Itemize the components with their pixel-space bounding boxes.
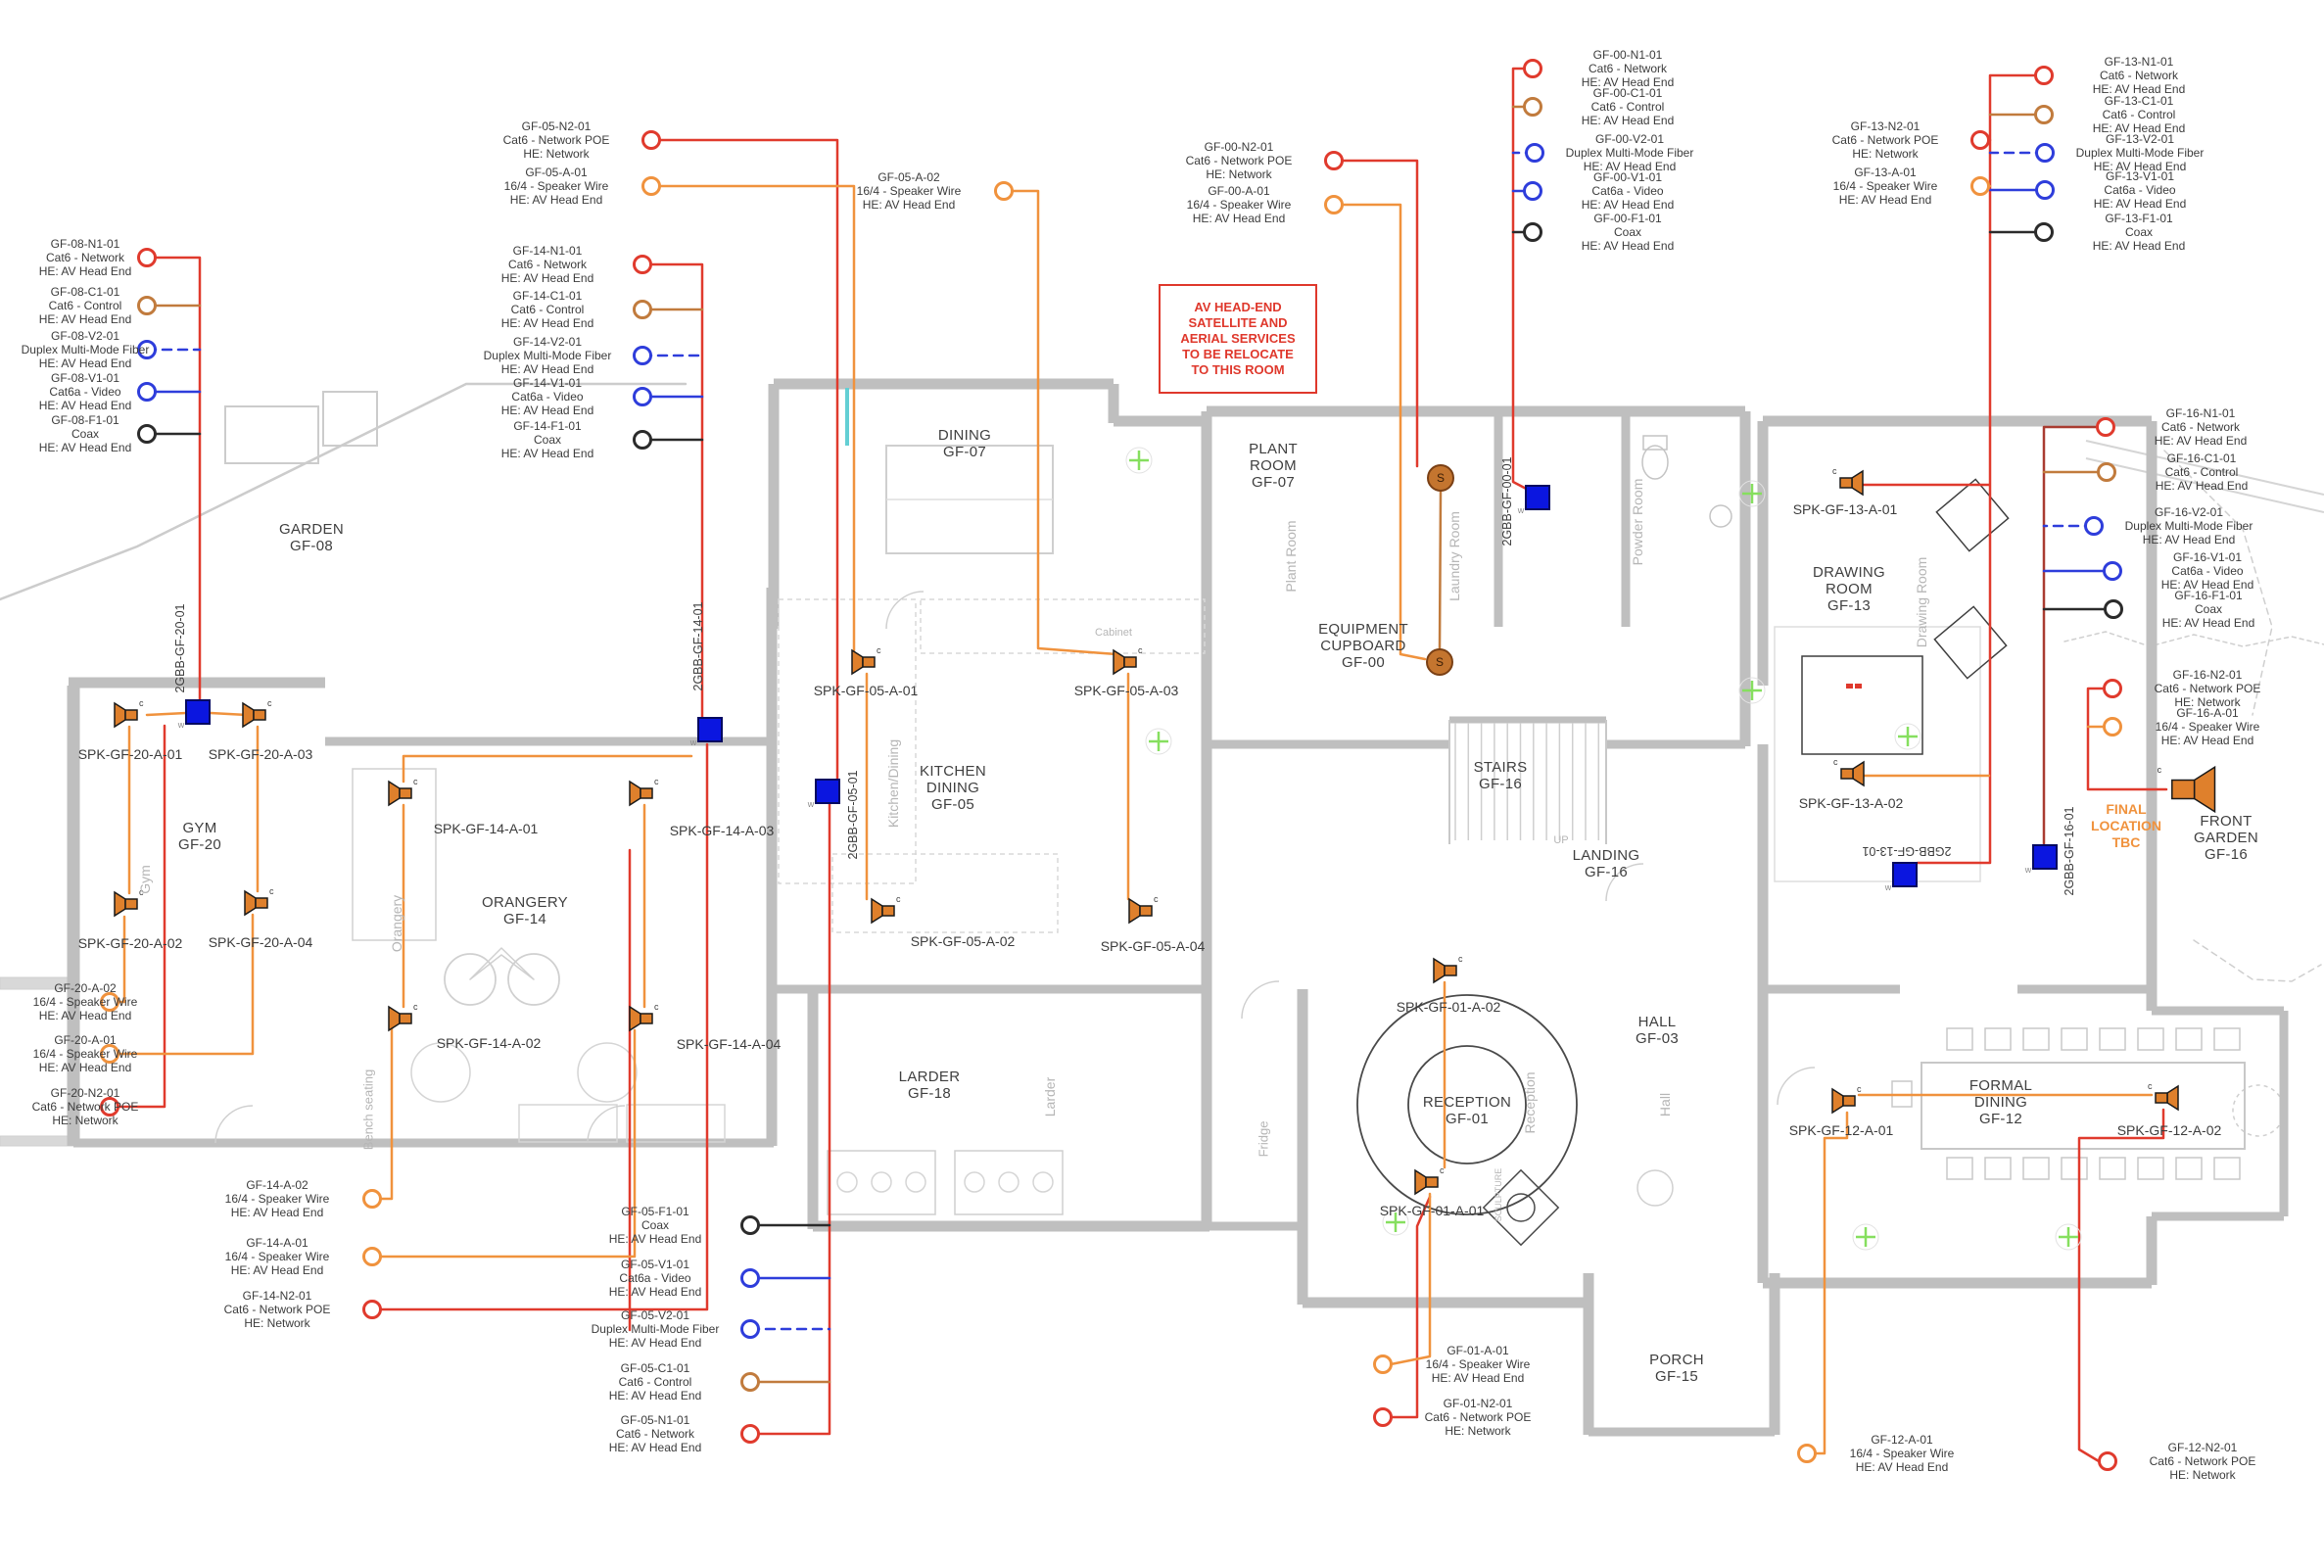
cable-callout-GF-00-C1-01: GF-00-C1-01Cat6 - ControlHE: AV Head End: [1544, 86, 1711, 127]
callout-dest: HE: AV Head End: [1544, 198, 1711, 212]
callout-dest: HE: AV Head End: [572, 1285, 738, 1299]
cable-callout-GF-08-V2-01: GF-08-V2-01Duplex Multi-Mode FiberHE: AV…: [2, 329, 168, 370]
callout-cable: Coax: [2, 427, 168, 441]
callout-cable: Duplex Multi-Mode Fiber: [1546, 146, 1713, 160]
callout-id: GF-14-V1-01: [464, 376, 631, 390]
room-label-plant-room-gf-07: PLANTROOMGF-07: [1249, 441, 1298, 491]
cable-callout-GF-01-N2-01: GF-01-N2-01Cat6 - Network POEHE: Network: [1395, 1397, 1561, 1438]
cable-callout-GF-14-N1-01: GF-14-N1-01Cat6 - NetworkHE: AV Head End: [464, 244, 631, 285]
callout-id: GF-00-F1-01: [1544, 212, 1711, 225]
cable-callout-GF-16-A-01: GF-16-A-0116/4 - Speaker WireHE: AV Head…: [2124, 706, 2291, 747]
speaker-label-SPK-GF-12-A-02: SPK-GF-12-A-02: [2117, 1122, 2222, 1138]
area-annotation-drawing-room: Drawing Room: [1914, 557, 1929, 648]
room-label-line: DINING: [920, 780, 986, 796]
room-label-line: GF-16: [1573, 864, 1640, 880]
cable-callout-GF-13-F1-01: GF-13-F1-01CoaxHE: AV Head End: [2056, 212, 2222, 253]
callout-cable: Cat6 - Network: [572, 1427, 738, 1441]
cable-callout-GF-08-C1-01: GF-08-C1-01Cat6 - ControlHE: AV Head End: [2, 285, 168, 326]
cable-callout-GF-08-F1-01: GF-08-F1-01CoaxHE: AV Head End: [2, 413, 168, 454]
callout-dest: HE: AV Head End: [1544, 114, 1711, 127]
speaker-label-SPK-GF-14-A-03: SPK-GF-14-A-03: [670, 823, 775, 838]
callout-dest: HE: AV Head End: [464, 316, 631, 330]
callout-id: GF-13-C1-01: [2056, 94, 2222, 108]
callout-cable: Cat6 - Network POE: [1395, 1410, 1561, 1424]
callout-cable: Duplex Multi-Mode Fiber: [2, 343, 168, 356]
room-label-line: GF-14: [482, 911, 568, 927]
callout-cable: Cat6 - Control: [2056, 108, 2222, 121]
area-annotation-larder: Larder: [1042, 1077, 1058, 1117]
room-label-line: ORANGERY: [482, 894, 568, 911]
speaker-label-SPK-GF-20-A-04: SPK-GF-20-A-04: [209, 934, 313, 950]
room-label-line: GYM: [178, 820, 221, 836]
note-line: FINAL: [2091, 801, 2161, 818]
callout-id: GF-14-V2-01: [464, 335, 631, 349]
callout-id: GF-08-C1-01: [2, 285, 168, 299]
room-label-line: GF-13: [1813, 597, 1885, 614]
callout-dest: HE: Network: [1395, 1424, 1561, 1438]
callout-cable: Cat6 - Control: [464, 303, 631, 316]
room-label-line: ROOM: [1813, 581, 1885, 597]
note-final-location-tbc: FINALLOCATIONTBC: [2091, 801, 2161, 851]
callout-dest: HE: AV Head End: [473, 193, 640, 207]
callout-id: GF-00-V1-01: [1544, 170, 1711, 184]
room-label-line: LANDING: [1573, 847, 1640, 864]
note-line: AERIAL SERVICES: [1161, 331, 1315, 347]
callout-cable: 16/4 - Speaker Wire: [1395, 1357, 1561, 1371]
callout-cable: Cat6 - Network POE: [2, 1100, 168, 1114]
speaker-label-SPK-GF-01-A-01: SPK-GF-01-A-01: [1380, 1203, 1485, 1218]
callout-id: GF-01-N2-01: [1395, 1397, 1561, 1410]
callout-dest: HE: AV Head End: [1802, 193, 1968, 207]
callout-id: GF-16-V1-01: [2124, 550, 2291, 564]
room-label-line: STAIRS: [1474, 759, 1528, 776]
callout-cable: Duplex Multi-Mode Fiber: [464, 349, 631, 362]
room-label-line: GF-08: [279, 538, 344, 554]
callout-id: GF-00-N1-01: [1544, 48, 1711, 62]
callout-dest: HE: AV Head End: [194, 1263, 360, 1277]
speaker-label-SPK-GF-13-A-01: SPK-GF-13-A-01: [1793, 501, 1898, 517]
cable-callout-GF-05-N2-01: GF-05-N2-01Cat6 - Network POEHE: Network: [473, 119, 640, 161]
callout-cable: Cat6 - Network POE: [1156, 154, 1322, 167]
speaker-label-SPK-GF-05-A-01: SPK-GF-05-A-01: [814, 683, 919, 698]
room-label-line: GF-16: [1474, 776, 1528, 792]
callout-dest: HE: AV Head End: [2124, 734, 2291, 747]
room-label-porch-gf-15: PORCHGF-15: [1649, 1352, 1704, 1385]
speaker-label-SPK-GF-05-A-02: SPK-GF-05-A-02: [911, 933, 1016, 949]
callout-cable: 16/4 - Speaker Wire: [1802, 179, 1968, 193]
callout-id: GF-16-N2-01: [2124, 668, 2291, 682]
room-label-line: DINING: [938, 427, 991, 444]
callout-cable: Duplex Multi-Mode Fiber: [572, 1322, 738, 1336]
cable-callout-GF-00-F1-01: GF-00-F1-01CoaxHE: AV Head End: [1544, 212, 1711, 253]
callout-id: GF-12-N2-01: [2119, 1441, 2286, 1454]
room-label-larder-gf-18: LARDERGF-18: [899, 1069, 961, 1102]
area-annotation-laundry-room: Laundry Room: [1447, 511, 1462, 601]
callout-dest: HE: AV Head End: [2, 441, 168, 454]
callout-dest: HE: AV Head End: [2056, 239, 2222, 253]
room-label-line: GF-03: [1636, 1030, 1679, 1047]
callout-cable: Cat6 - Network: [2056, 69, 2222, 82]
callout-cable: 16/4 - Speaker Wire: [1156, 198, 1322, 212]
callout-dest: HE: AV Head End: [2125, 616, 2292, 630]
speaker-label-SPK-GF-20-A-02: SPK-GF-20-A-02: [78, 935, 183, 951]
speaker-label-SPK-GF-12-A-01: SPK-GF-12-A-01: [1789, 1122, 1894, 1138]
callout-cable: Cat6 - Control: [2, 299, 168, 312]
callout-cable: Cat6a - Video: [464, 390, 631, 404]
callout-id: GF-13-N2-01: [1802, 119, 1968, 133]
room-label-line: DRAWING: [1813, 564, 1885, 581]
distribution-box-label-2GBB-GF-13-01: 2GBB-GF-13-01: [1862, 844, 1951, 858]
area-annotation-powder-room: Powder Room: [1630, 479, 1645, 566]
callout-cable: Cat6 - Network: [2, 251, 168, 264]
room-label-reception-gf-01: RECEPTIONGF-01: [1423, 1094, 1511, 1127]
callout-cable: 16/4 - Speaker Wire: [826, 184, 992, 198]
area-annotation-up: UP: [1553, 834, 1568, 846]
callout-id: GF-14-F1-01: [464, 419, 631, 433]
callout-id: GF-13-V2-01: [2057, 132, 2223, 146]
callout-dest: HE: Network: [1156, 167, 1322, 181]
callout-dest: HE: Network: [2119, 1468, 2286, 1482]
cable-callout-GF-14-A-01: GF-14-A-0116/4 - Speaker WireHE: AV Head…: [194, 1236, 360, 1277]
callout-id: GF-05-N2-01: [473, 119, 640, 133]
callout-cable: Coax: [464, 433, 631, 447]
speaker-label-SPK-GF-01-A-02: SPK-GF-01-A-02: [1397, 999, 1501, 1015]
cable-callout-GF-05-N1-01: GF-05-N1-01Cat6 - NetworkHE: AV Head End: [572, 1413, 738, 1454]
callout-id: GF-08-V2-01: [2, 329, 168, 343]
room-label-orangery-gf-14: ORANGERYGF-14: [482, 894, 568, 927]
room-label-line: GF-12: [1969, 1111, 2032, 1127]
area-annotation-reception: Reception: [1522, 1071, 1538, 1133]
callout-cable: Duplex Multi-Mode Fiber: [2106, 519, 2272, 533]
cable-callout-GF-14-F1-01: GF-14-F1-01CoaxHE: AV Head End: [464, 419, 631, 460]
cable-callout-GF-13-V2-01: GF-13-V2-01Duplex Multi-Mode FiberHE: AV…: [2057, 132, 2223, 173]
floor-plan-canvas: cccccccccccccccccccwwwwwwSS GF-08-N1-01C…: [0, 0, 2324, 1568]
room-label-line: GF-18: [899, 1085, 961, 1102]
cable-callout-GF-00-V2-01: GF-00-V2-01Duplex Multi-Mode FiberHE: AV…: [1546, 132, 1713, 173]
area-annotation-kitchen-dining: Kitchen/Dining: [885, 739, 901, 828]
speaker-label-SPK-GF-14-A-01: SPK-GF-14-A-01: [434, 821, 539, 836]
callout-cable: 16/4 - Speaker Wire: [2, 995, 168, 1009]
cable-callout-GF-14-A-02: GF-14-A-0216/4 - Speaker WireHE: AV Head…: [194, 1178, 360, 1219]
cable-callout-GF-20-A-01: GF-20-A-0116/4 - Speaker WireHE: AV Head…: [2, 1033, 168, 1074]
callout-cable: Cat6 - Network: [1544, 62, 1711, 75]
callout-id: GF-20-A-01: [2, 1033, 168, 1047]
cable-callout-GF-00-V1-01: GF-00-V1-01Cat6a - VideoHE: AV Head End: [1544, 170, 1711, 212]
speaker-label-SPK-GF-20-A-01: SPK-GF-20-A-01: [78, 746, 183, 762]
callout-cable: Cat6 - Network POE: [2124, 682, 2291, 695]
callout-id: GF-14-C1-01: [464, 289, 631, 303]
callout-id: GF-16-F1-01: [2125, 589, 2292, 602]
cable-callout-GF-00-N2-01: GF-00-N2-01Cat6 - Network POEHE: Network: [1156, 140, 1322, 181]
cable-callout-GF-16-V2-01: GF-16-V2-01Duplex Multi-Mode FiberHE: AV…: [2106, 505, 2272, 546]
room-label-line: LARDER: [899, 1069, 961, 1085]
room-label-line: GF-05: [920, 796, 986, 813]
callout-cable: Coax: [1544, 225, 1711, 239]
callout-cable: 16/4 - Speaker Wire: [2, 1047, 168, 1061]
callout-id: GF-20-N2-01: [2, 1086, 168, 1100]
room-label-line: KITCHEN: [920, 763, 986, 780]
callout-id: GF-00-C1-01: [1544, 86, 1711, 100]
callout-id: GF-01-A-01: [1395, 1344, 1561, 1357]
callout-id: GF-16-A-01: [2124, 706, 2291, 720]
room-label-line: GF-01: [1423, 1111, 1511, 1127]
callout-dest: HE: AV Head End: [2, 1061, 168, 1074]
distribution-box-label-2GBB-GF-16-01: 2GBB-GF-16-01: [2063, 806, 2076, 895]
room-label-front-garden-gf-16: FRONTGARDENGF-16: [2194, 813, 2258, 863]
callout-id: GF-13-F1-01: [2056, 212, 2222, 225]
room-label-line: PORCH: [1649, 1352, 1704, 1368]
speaker-label-SPK-GF-05-A-03: SPK-GF-05-A-03: [1074, 683, 1179, 698]
callout-id: GF-08-N1-01: [2, 237, 168, 251]
callout-id: GF-08-F1-01: [2, 413, 168, 427]
area-annotation-orangery: Orangery: [389, 895, 404, 952]
room-label-line: HALL: [1636, 1014, 1679, 1030]
callout-id: GF-14-A-01: [194, 1236, 360, 1250]
room-label-line: ROOM: [1249, 457, 1298, 474]
callout-dest: HE: AV Head End: [572, 1389, 738, 1402]
note-line: TO BE RELOCATE: [1161, 347, 1315, 362]
callout-id: GF-05-V2-01: [572, 1308, 738, 1322]
callout-dest: HE: AV Head End: [2, 264, 168, 278]
room-label-line: FRONT: [2194, 813, 2258, 830]
callout-dest: HE: AV Head End: [2, 399, 168, 412]
room-label-landing-gf-16: LANDINGGF-16: [1573, 847, 1640, 880]
area-annotation-bench-seating: Bench seating: [361, 1069, 376, 1150]
cable-callout-GF-13-V1-01: GF-13-V1-01Cat6a - VideoHE: AV Head End: [2057, 169, 2223, 211]
callout-id: GF-05-A-02: [826, 170, 992, 184]
speaker-label-SPK-GF-20-A-03: SPK-GF-20-A-03: [209, 746, 313, 762]
callout-dest: HE: AV Head End: [2, 356, 168, 370]
cable-callout-GF-20-N2-01: GF-20-N2-01Cat6 - Network POEHE: Network: [2, 1086, 168, 1127]
callout-id: GF-05-C1-01: [572, 1361, 738, 1375]
room-label-line: DINING: [1969, 1094, 2032, 1111]
callout-cable: Cat6a - Video: [2057, 183, 2223, 197]
room-label-line: GF-07: [938, 444, 991, 460]
callout-dest: HE: AV Head End: [572, 1336, 738, 1350]
callout-dest: HE: Network: [194, 1316, 360, 1330]
callout-cable: Cat6 - Network: [2117, 420, 2284, 434]
cable-callout-GF-14-V1-01: GF-14-V1-01Cat6a - VideoHE: AV Head End: [464, 376, 631, 417]
callout-cable: Coax: [572, 1218, 738, 1232]
callout-cable: 16/4 - Speaker Wire: [2124, 720, 2291, 734]
callout-dest: HE: AV Head End: [572, 1441, 738, 1454]
callout-id: GF-00-N2-01: [1156, 140, 1322, 154]
room-label-line: GF-15: [1649, 1368, 1704, 1385]
callout-cable: Coax: [2125, 602, 2292, 616]
cable-callout-GF-05-V1-01: GF-05-V1-01Cat6a - VideoHE: AV Head End: [572, 1258, 738, 1299]
callout-dest: HE: Network: [473, 147, 640, 161]
cable-callout-GF-16-V1-01: GF-16-V1-01Cat6a - VideoHE: AV Head End: [2124, 550, 2291, 592]
callout-dest: HE: AV Head End: [1819, 1460, 1985, 1474]
callout-dest: HE: Network: [2, 1114, 168, 1127]
callout-cable: Cat6 - Network: [464, 258, 631, 271]
callout-id: GF-00-V2-01: [1546, 132, 1713, 146]
room-label-line: GARDEN: [2194, 830, 2258, 846]
note-line: TO THIS ROOM: [1161, 362, 1315, 378]
callout-cable: Cat6 - Control: [572, 1375, 738, 1389]
note-line: LOCATION: [2091, 818, 2161, 834]
callout-cable: Cat6a - Video: [572, 1271, 738, 1285]
cable-callout-GF-08-V1-01: GF-08-V1-01Cat6a - VideoHE: AV Head End: [2, 371, 168, 412]
callout-cable: Cat6 - Control: [1544, 100, 1711, 114]
cable-callout-GF-05-F1-01: GF-05-F1-01CoaxHE: AV Head End: [572, 1205, 738, 1246]
callout-id: GF-13-N1-01: [2056, 55, 2222, 69]
callout-cable: 16/4 - Speaker Wire: [473, 179, 640, 193]
callout-id: GF-00-A-01: [1156, 184, 1322, 198]
callout-cable: Cat6a - Video: [1544, 184, 1711, 198]
cable-callout-GF-00-A-01: GF-00-A-0116/4 - Speaker WireHE: AV Head…: [1156, 184, 1322, 225]
note-line: SATELLITE AND: [1161, 315, 1315, 331]
callout-dest: HE: AV Head End: [2057, 197, 2223, 211]
callout-dest: HE: AV Head End: [464, 404, 631, 417]
cable-callout-GF-16-F1-01: GF-16-F1-01CoaxHE: AV Head End: [2125, 589, 2292, 630]
room-label-line: FORMAL: [1969, 1077, 2032, 1094]
cable-callout-GF-16-C1-01: GF-16-C1-01Cat6 - ControlHE: AV Head End: [2118, 451, 2285, 493]
room-label-hall-gf-03: HALLGF-03: [1636, 1014, 1679, 1047]
cable-callout-GF-14-V2-01: GF-14-V2-01Duplex Multi-Mode FiberHE: AV…: [464, 335, 631, 376]
callout-cable: Cat6 - Control: [2118, 465, 2285, 479]
callout-dest: HE: AV Head End: [464, 447, 631, 460]
callout-cable: Cat6 - Network POE: [2119, 1454, 2286, 1468]
cable-callout-GF-14-N2-01: GF-14-N2-01Cat6 - Network POEHE: Network: [194, 1289, 360, 1330]
callout-id: GF-05-A-01: [473, 166, 640, 179]
room-label-line: GARDEN: [279, 521, 344, 538]
speaker-label-SPK-GF-05-A-04: SPK-GF-05-A-04: [1101, 938, 1206, 954]
distribution-box-label-2GBB-GF-14-01: 2GBB-GF-14-01: [691, 601, 705, 690]
callout-cable: Cat6a - Video: [2, 385, 168, 399]
note-line: TBC: [2091, 834, 2161, 851]
room-label-kitchen-dining-gf-05: KITCHENDININGGF-05: [920, 763, 986, 813]
area-annotation-cabinet: Cabinet: [1095, 627, 1132, 639]
cable-callout-GF-16-N1-01: GF-16-N1-01Cat6 - NetworkHE: AV Head End: [2117, 406, 2284, 448]
area-annotation-hall: Hall: [1657, 1093, 1673, 1117]
callout-id: GF-14-N1-01: [464, 244, 631, 258]
speaker-label-SPK-GF-14-A-04: SPK-GF-14-A-04: [677, 1036, 782, 1052]
callout-dest: HE: AV Head End: [464, 362, 631, 376]
callout-id: GF-16-N1-01: [2117, 406, 2284, 420]
room-label-stairs-gf-16: STAIRSGF-16: [1474, 759, 1528, 792]
room-label-line: CUPBOARD: [1318, 638, 1408, 654]
room-label-line: EQUIPMENT: [1318, 621, 1408, 638]
cable-callout-GF-13-A-01: GF-13-A-0116/4 - Speaker WireHE: AV Head…: [1802, 166, 1968, 207]
speaker-label-SPK-GF-13-A-02: SPK-GF-13-A-02: [1799, 795, 1904, 811]
note-relocate-services: AV HEAD-ENDSATELLITE ANDAERIAL SERVICEST…: [1159, 284, 1317, 394]
note-line: AV HEAD-END: [1161, 300, 1315, 315]
cable-callout-GF-05-A-02: GF-05-A-0216/4 - Speaker WireHE: AV Head…: [826, 170, 992, 212]
room-label-line: GF-20: [178, 836, 221, 853]
callout-id: GF-14-A-02: [194, 1178, 360, 1192]
room-label-drawing-room-gf-13: DRAWINGROOMGF-13: [1813, 564, 1885, 614]
callout-dest: HE: AV Head End: [2117, 434, 2284, 448]
area-annotation-gym: Gym: [137, 865, 153, 894]
callout-id: GF-12-A-01: [1819, 1433, 1985, 1447]
area-annotation-fridge: Fridge: [1257, 1121, 1271, 1158]
callout-cable: Cat6 - Network POE: [194, 1303, 360, 1316]
room-label-line: GF-00: [1318, 654, 1408, 671]
callout-cable: Cat6a - Video: [2124, 564, 2291, 578]
callout-dest: HE: AV Head End: [2106, 533, 2272, 546]
cable-callout-GF-13-N2-01: GF-13-N2-01Cat6 - Network POEHE: Network: [1802, 119, 1968, 161]
callout-id: GF-13-V1-01: [2057, 169, 2223, 183]
cable-callout-GF-05-V2-01: GF-05-V2-01Duplex Multi-Mode FiberHE: AV…: [572, 1308, 738, 1350]
room-label-garden-gf-08: GARDENGF-08: [279, 521, 344, 554]
callout-dest: HE: AV Head End: [2, 312, 168, 326]
callout-id: GF-13-A-01: [1802, 166, 1968, 179]
callout-id: GF-16-V2-01: [2106, 505, 2272, 519]
cable-callout-GF-05-C1-01: GF-05-C1-01Cat6 - ControlHE: AV Head End: [572, 1361, 738, 1402]
room-label-gym-gf-20: GYMGF-20: [178, 820, 221, 853]
room-label-equipment-cupboard-gf-00: EQUIPMENTCUPBOARDGF-00: [1318, 621, 1408, 671]
callout-cable: 16/4 - Speaker Wire: [1819, 1447, 1985, 1460]
callout-id: GF-16-C1-01: [2118, 451, 2285, 465]
callout-cable: 16/4 - Speaker Wire: [194, 1192, 360, 1206]
callout-cable: Cat6 - Network POE: [1802, 133, 1968, 147]
callout-dest: HE: AV Head End: [2118, 479, 2285, 493]
room-label-dining-gf-07: DININGGF-07: [938, 427, 991, 460]
speaker-label-SPK-GF-14-A-02: SPK-GF-14-A-02: [437, 1035, 542, 1051]
room-label-line: GF-07: [1249, 474, 1298, 491]
cable-callout-GF-01-A-01: GF-01-A-0116/4 - Speaker WireHE: AV Head…: [1395, 1344, 1561, 1385]
callout-dest: HE: AV Head End: [1395, 1371, 1561, 1385]
callout-id: GF-20-A-02: [2, 981, 168, 995]
callout-dest: HE: AV Head End: [464, 271, 631, 285]
callout-id: GF-14-N2-01: [194, 1289, 360, 1303]
callout-cable: Cat6 - Network POE: [473, 133, 640, 147]
callout-dest: HE: AV Head End: [2, 1009, 168, 1022]
floor-plan-labels: GF-08-N1-01Cat6 - NetworkHE: AV Head End…: [0, 0, 2324, 1568]
area-annotation-sculpture: SCULPTURE: [1494, 1168, 1503, 1222]
cable-callout-GF-20-A-02: GF-20-A-0216/4 - Speaker WireHE: AV Head…: [2, 981, 168, 1022]
room-label-line: RECEPTION: [1423, 1094, 1511, 1111]
distribution-box-label-2GBB-GF-20-01: 2GBB-GF-20-01: [173, 603, 187, 692]
area-annotation-plant-room: Plant Room: [1283, 520, 1299, 592]
cable-callout-GF-12-N2-01: GF-12-N2-01Cat6 - Network POEHE: Network: [2119, 1441, 2286, 1482]
callout-dest: HE: AV Head End: [572, 1232, 738, 1246]
callout-id: GF-08-V1-01: [2, 371, 168, 385]
callout-dest: HE: AV Head End: [1156, 212, 1322, 225]
cable-callout-GF-16-N2-01: GF-16-N2-01Cat6 - Network POEHE: Network: [2124, 668, 2291, 709]
callout-cable: Coax: [2056, 225, 2222, 239]
callout-dest: HE: AV Head End: [194, 1206, 360, 1219]
callout-id: GF-05-F1-01: [572, 1205, 738, 1218]
cable-callout-GF-08-N1-01: GF-08-N1-01Cat6 - NetworkHE: AV Head End: [2, 237, 168, 278]
callout-dest: HE: AV Head End: [1544, 239, 1711, 253]
distribution-box-label-2GBB-GF-05-01: 2GBB-GF-05-01: [846, 770, 860, 859]
cable-callout-GF-00-N1-01: GF-00-N1-01Cat6 - NetworkHE: AV Head End: [1544, 48, 1711, 89]
room-label-line: PLANT: [1249, 441, 1298, 457]
callout-cable: 16/4 - Speaker Wire: [194, 1250, 360, 1263]
callout-cable: Duplex Multi-Mode Fiber: [2057, 146, 2223, 160]
cable-callout-GF-13-C1-01: GF-13-C1-01Cat6 - ControlHE: AV Head End: [2056, 94, 2222, 135]
distribution-box-label-2GBB-GF-00-01: 2GBB-GF-00-01: [1500, 456, 1514, 546]
cable-callout-GF-14-C1-01: GF-14-C1-01Cat6 - ControlHE: AV Head End: [464, 289, 631, 330]
callout-dest: HE: Network: [1802, 147, 1968, 161]
callout-id: GF-05-N1-01: [572, 1413, 738, 1427]
callout-dest: HE: AV Head End: [826, 198, 992, 212]
cable-callout-GF-13-N1-01: GF-13-N1-01Cat6 - NetworkHE: AV Head End: [2056, 55, 2222, 96]
room-label-line: GF-16: [2194, 846, 2258, 863]
cable-callout-GF-05-A-01: GF-05-A-0116/4 - Speaker WireHE: AV Head…: [473, 166, 640, 207]
room-label-formal-dining-gf-12: FORMALDININGGF-12: [1969, 1077, 2032, 1127]
cable-callout-GF-12-A-01: GF-12-A-0116/4 - Speaker WireHE: AV Head…: [1819, 1433, 1985, 1474]
callout-id: GF-05-V1-01: [572, 1258, 738, 1271]
